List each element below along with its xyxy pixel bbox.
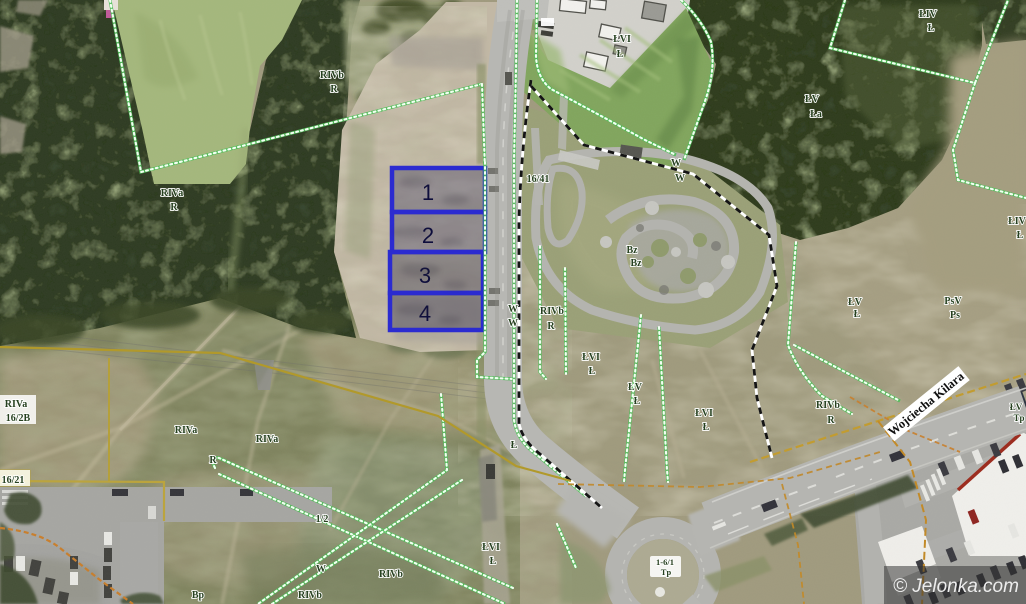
svg-text:R: R bbox=[170, 202, 178, 213]
svg-text:Bz: Bz bbox=[630, 258, 642, 269]
svg-text:ŁV: ŁV bbox=[1010, 402, 1023, 412]
svg-text:ŁVI: ŁVI bbox=[582, 352, 600, 363]
svg-text:ŁIV: ŁIV bbox=[1008, 216, 1026, 227]
svg-text:Tp: Tp bbox=[1013, 413, 1024, 423]
svg-text:1/2: 1/2 bbox=[316, 514, 329, 525]
svg-text:W: W bbox=[675, 173, 685, 184]
svg-text:Ł: Ł bbox=[854, 309, 861, 320]
svg-text:1-6/1: 1-6/1 bbox=[656, 557, 674, 567]
svg-text:ŁVI: ŁVI bbox=[482, 542, 500, 553]
svg-text:RIVa: RIVa bbox=[161, 188, 183, 199]
svg-text:Ł: Ł bbox=[511, 440, 518, 451]
svg-text:© Jelonka.com: © Jelonka.com bbox=[893, 576, 1019, 597]
svg-text:16/2B: 16/2B bbox=[6, 413, 31, 424]
svg-text:ŁVI: ŁVI bbox=[613, 34, 631, 45]
svg-text:R: R bbox=[547, 321, 555, 332]
svg-text:Ł: Ł bbox=[617, 49, 624, 60]
svg-text:Ł: Ł bbox=[928, 23, 935, 34]
svg-text:ŁV: ŁV bbox=[628, 382, 643, 393]
svg-text:R: R bbox=[209, 455, 217, 466]
svg-text:PsV: PsV bbox=[944, 296, 962, 307]
svg-text:W: W bbox=[316, 564, 326, 575]
svg-text:16/41: 16/41 bbox=[527, 174, 550, 185]
svg-text:16/21: 16/21 bbox=[2, 475, 25, 486]
svg-text:RIVa: RIVa bbox=[5, 399, 27, 410]
svg-text:ŁVI: ŁVI bbox=[695, 408, 713, 419]
svg-text:Ł: Ł bbox=[1017, 230, 1024, 241]
svg-text:W: W bbox=[508, 318, 518, 329]
svg-text:W: W bbox=[671, 158, 681, 169]
svg-text:Bz: Bz bbox=[626, 245, 638, 256]
svg-text:Ps: Ps bbox=[950, 310, 960, 321]
svg-text:Ł: Ł bbox=[634, 396, 641, 407]
svg-text:ŁV: ŁV bbox=[805, 94, 820, 105]
svg-text:RIVb: RIVb bbox=[816, 400, 840, 411]
svg-text:RIVa: RIVa bbox=[256, 434, 278, 445]
svg-text:Ła: Ła bbox=[810, 109, 822, 120]
svg-text:W: W bbox=[508, 304, 518, 315]
svg-text:Ł: Ł bbox=[490, 556, 497, 567]
svg-text:RIVb: RIVb bbox=[320, 70, 344, 81]
svg-text:RIVb: RIVb bbox=[540, 306, 564, 317]
svg-text:RIVb: RIVb bbox=[379, 569, 403, 580]
svg-text:R: R bbox=[827, 415, 835, 426]
svg-text:R: R bbox=[330, 84, 338, 95]
svg-text:Bp: Bp bbox=[192, 590, 205, 601]
svg-text:ŁV: ŁV bbox=[848, 297, 863, 308]
svg-text:Ł: Ł bbox=[703, 422, 710, 433]
svg-text:RIVb: RIVb bbox=[298, 590, 322, 601]
svg-text:Tp: Tp bbox=[661, 567, 672, 577]
svg-text:RIVa: RIVa bbox=[175, 425, 197, 436]
svg-text:Ł: Ł bbox=[589, 366, 596, 377]
svg-text:ŁIV: ŁIV bbox=[919, 9, 938, 20]
